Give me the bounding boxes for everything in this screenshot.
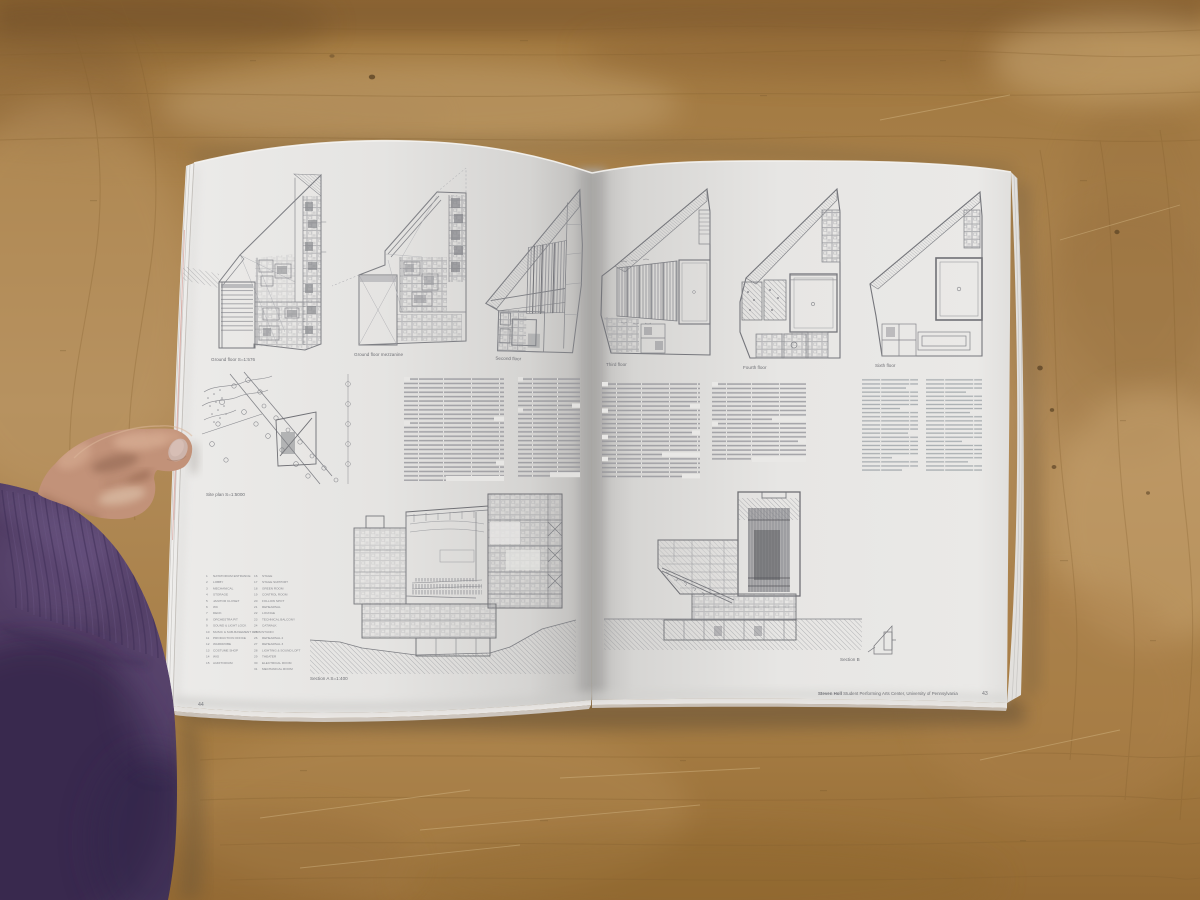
svg-text:MECHANICAL: MECHANICAL [213,586,234,590]
svg-text:WC: WC [213,605,219,609]
svg-text:23: 23 [254,617,258,621]
svg-text:4: 4 [206,593,208,597]
svg-text:REHEARSAL 3: REHEARSAL 3 [262,642,283,646]
svg-text:13: 13 [206,648,210,652]
svg-text:12: 12 [206,642,210,646]
svg-text:11: 11 [206,636,209,640]
svg-text:22: 22 [254,611,258,615]
svg-text:9: 9 [206,624,208,628]
svg-text:6: 6 [206,605,208,609]
svg-text:COSTUME SHOP: COSTUME SHOP [213,648,238,652]
svg-text:21: 21 [254,605,258,609]
svg-text:PRODUCTION OFFICE: PRODUCTION OFFICE [213,636,246,640]
svg-text:Second floor: Second floor [495,356,521,362]
svg-text:Section A S=1:400: Section A S=1:400 [310,676,348,681]
svg-text:16: 16 [254,574,258,578]
svg-text:28: 28 [254,648,258,652]
svg-text:FOLLOW SPOT: FOLLOW SPOT [262,599,284,603]
svg-text:LOBBY: LOBBY [213,580,223,584]
svg-text:17: 17 [254,580,258,584]
svg-text:8: 8 [206,617,208,621]
svg-text:Site plan S=1:5000: Site plan S=1:5000 [206,492,245,497]
svg-text:DECK: DECK [213,611,223,615]
svg-text:MECHANICAL ROOM: MECHANICAL ROOM [262,667,293,671]
svg-text:15: 15 [206,661,210,665]
svg-text:26: 26 [254,636,258,640]
svg-text:18: 18 [254,586,258,590]
svg-text:CATWALK: CATWALK [262,624,278,628]
svg-text:14: 14 [206,655,210,659]
svg-text:THEATER: THEATER [262,655,277,659]
svg-text:43: 43 [982,691,988,697]
svg-text:Ground floor S=1:576: Ground floor S=1:576 [211,357,255,362]
svg-text:STAGE SUPPORT: STAGE SUPPORT [262,580,288,584]
svg-text:1: 1 [206,574,208,578]
svg-text:CONTROL ROOM: CONTROL ROOM [262,593,288,597]
svg-text:GREEN ROOM: GREEN ROOM [262,586,284,590]
svg-text:2: 2 [206,580,208,584]
svg-text:ELECTRICAL ROOM: ELECTRICAL ROOM [262,661,292,665]
svg-text:20: 20 [254,599,258,603]
svg-text:Steven Holl Student Performin: Steven Holl Student Performing Arts Cent… [818,691,958,696]
svg-text:LIGHTING & SOUND LOFT: LIGHTING & SOUND LOFT [262,648,300,652]
svg-text:7: 7 [206,611,208,615]
svg-text:10: 10 [206,630,210,634]
svg-text:31: 31 [254,667,258,671]
svg-text:AUDITORIUM: AUDITORIUM [213,661,233,665]
svg-text:25: 25 [254,630,258,634]
svg-text:Ground floor mezzanine: Ground floor mezzanine [354,352,403,357]
svg-text:WARDROBE: WARDROBE [213,642,231,646]
svg-text:Sixth floor: Sixth floor [875,363,896,368]
svg-text:ORCHESTRA PIT: ORCHESTRA PIT [213,617,238,621]
svg-text:STUDIO: STUDIO [262,630,274,634]
svg-text:Section B: Section B [840,657,860,662]
svg-text:SOUND & LIGHT LOCK: SOUND & LIGHT LOCK [213,624,247,628]
svg-text:NATATORIUM ENTRANCE: NATATORIUM ENTRANCE [213,574,251,578]
svg-text:JANITOR CLOSET: JANITOR CLOSET [213,599,240,603]
svg-text:STAGE: STAGE [262,574,272,578]
svg-text:27: 27 [254,642,258,646]
svg-text:5: 5 [206,599,208,603]
svg-text:30: 30 [254,661,258,665]
svg-text:44: 44 [198,702,204,708]
svg-text:29: 29 [254,655,258,659]
svg-text:Fourth floor: Fourth floor [743,365,767,370]
svg-text:TECHNICAL BALCONY: TECHNICAL BALCONY [262,617,295,621]
svg-text:3: 3 [206,586,208,590]
svg-text:LOUNGE: LOUNGE [262,611,275,615]
svg-text:19: 19 [254,593,258,597]
svg-text:REHEARSAL: REHEARSAL [262,605,281,609]
svg-text:REHEARSAL 2: REHEARSAL 2 [262,636,283,640]
svg-text:STORAGE: STORAGE [213,593,228,597]
svg-text:24: 24 [254,624,258,628]
svg-text:Third floor: Third floor [606,362,627,367]
svg-text:WIG: WIG [213,655,220,659]
